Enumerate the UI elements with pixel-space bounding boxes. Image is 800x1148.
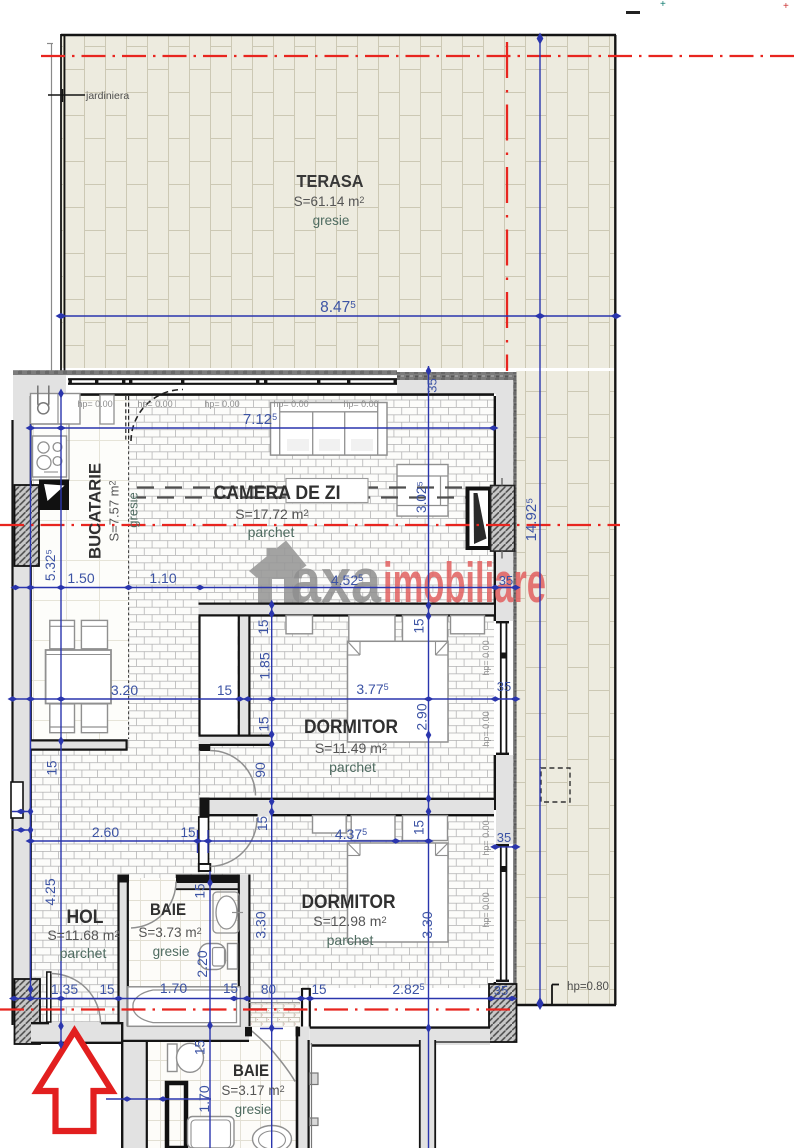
svg-text:hp= 0.00: hp= 0.00 (137, 399, 172, 409)
svg-text:3.02⁵: 3.02⁵ (414, 481, 429, 513)
svg-text:1.70: 1.70 (160, 980, 187, 996)
svg-text:S=11.68 m2: S=11.68 m2 (47, 927, 119, 943)
svg-text:imobiliare: imobiliare (383, 551, 546, 615)
svg-text:35: 35 (497, 679, 511, 694)
svg-text:BUCATARIE: BUCATARIE (87, 463, 105, 559)
svg-text:15: 15 (99, 982, 114, 997)
svg-text:15: 15 (311, 982, 326, 997)
svg-text:hp= 0.00: hp= 0.00 (481, 640, 491, 675)
svg-text:1.85: 1.85 (256, 652, 272, 679)
svg-text:15: 15 (256, 619, 271, 634)
svg-text:gresie: gresie (313, 213, 350, 228)
svg-text:15: 15 (257, 716, 272, 731)
svg-text:80: 80 (261, 982, 276, 997)
svg-text:15: 15 (193, 1040, 208, 1055)
svg-text:1.35: 1.35 (51, 981, 78, 997)
svg-text:1.70: 1.70 (196, 1085, 212, 1112)
svg-text:hp= 0.00: hp= 0.00 (204, 399, 239, 409)
svg-text:hp= 0.00: hp= 0.00 (343, 399, 378, 409)
svg-text:14.92⁵: 14.92⁵ (523, 498, 540, 542)
svg-text:hp= 0.00: hp= 0.00 (481, 892, 491, 927)
svg-text:90: 90 (252, 762, 268, 778)
svg-text:gresie: gresie (235, 1102, 272, 1117)
svg-text:2.60: 2.60 (92, 824, 119, 840)
svg-text:1.50: 1.50 (67, 570, 94, 586)
svg-text:gresie: gresie (153, 944, 190, 959)
svg-text:35: 35 (497, 830, 511, 845)
svg-text:15: 15 (193, 883, 208, 898)
svg-text:DORMITOR: DORMITOR (302, 891, 396, 913)
svg-text:35: 35 (494, 983, 508, 998)
svg-text:S=17.72 m2: S=17.72 m2 (235, 506, 308, 522)
svg-text:S=12.98 m2: S=12.98 m2 (313, 913, 386, 929)
svg-text:S=61.14 m2: S=61.14 m2 (294, 194, 365, 209)
svg-text:hp= 0.00: hp= 0.00 (481, 820, 491, 855)
svg-text:parchet: parchet (329, 759, 376, 775)
svg-text:S=3.73 m2: S=3.73 m2 (138, 925, 201, 940)
svg-text:S=3.17 m2: S=3.17 m2 (221, 1083, 284, 1098)
svg-text:hp=0.80: hp=0.80 (567, 981, 609, 993)
svg-text:parchet: parchet (248, 524, 295, 540)
svg-text:35: 35 (499, 573, 513, 588)
svg-text:BAIE: BAIE (150, 901, 186, 919)
svg-text:3.20: 3.20 (111, 682, 138, 698)
svg-text:DORMITOR: DORMITOR (304, 716, 398, 738)
svg-text:S=7.57 m2: S=7.57 m2 (106, 480, 121, 541)
svg-text:15: 15 (255, 816, 270, 831)
svg-text:gresie: gresie (125, 492, 140, 527)
svg-text:3.30: 3.30 (419, 911, 435, 938)
svg-text:+: + (783, 1, 789, 12)
svg-text:hp= 0.00: hp= 0.00 (481, 711, 491, 746)
svg-text:4.25: 4.25 (42, 878, 58, 905)
svg-text:CAMERA DE ZI: CAMERA DE ZI (214, 483, 341, 504)
svg-text:hp= 0.00: hp= 0.00 (273, 399, 308, 409)
svg-text:S=11.49 m2: S=11.49 m2 (315, 740, 387, 756)
svg-text:15: 15 (217, 683, 232, 698)
svg-text:hp= 0.00: hp= 0.00 (77, 399, 112, 409)
svg-text:15: 15 (45, 760, 60, 775)
svg-text:5.32⁵: 5.32⁵ (43, 549, 58, 581)
svg-text:HOL: HOL (67, 906, 104, 928)
svg-text:35: 35 (424, 378, 439, 392)
svg-text:1.10: 1.10 (149, 570, 176, 586)
svg-text:TERASA: TERASA (297, 171, 364, 191)
svg-text:BAIE: BAIE (233, 1062, 269, 1080)
svg-text:2.90: 2.90 (413, 703, 429, 730)
svg-text:+: + (660, 0, 666, 10)
svg-text:parchet: parchet (327, 932, 374, 948)
svg-text:2.20: 2.20 (194, 950, 210, 977)
svg-text:parchet: parchet (60, 945, 107, 961)
svg-text:15: 15 (412, 618, 427, 633)
svg-text:7.125: 7.125 (243, 411, 277, 428)
svg-text:15: 15 (180, 825, 195, 840)
svg-text:jardiniera: jardiniera (85, 90, 129, 102)
svg-text:15: 15 (412, 820, 427, 835)
svg-text:3.30: 3.30 (252, 911, 268, 938)
svg-text:15: 15 (223, 981, 238, 996)
